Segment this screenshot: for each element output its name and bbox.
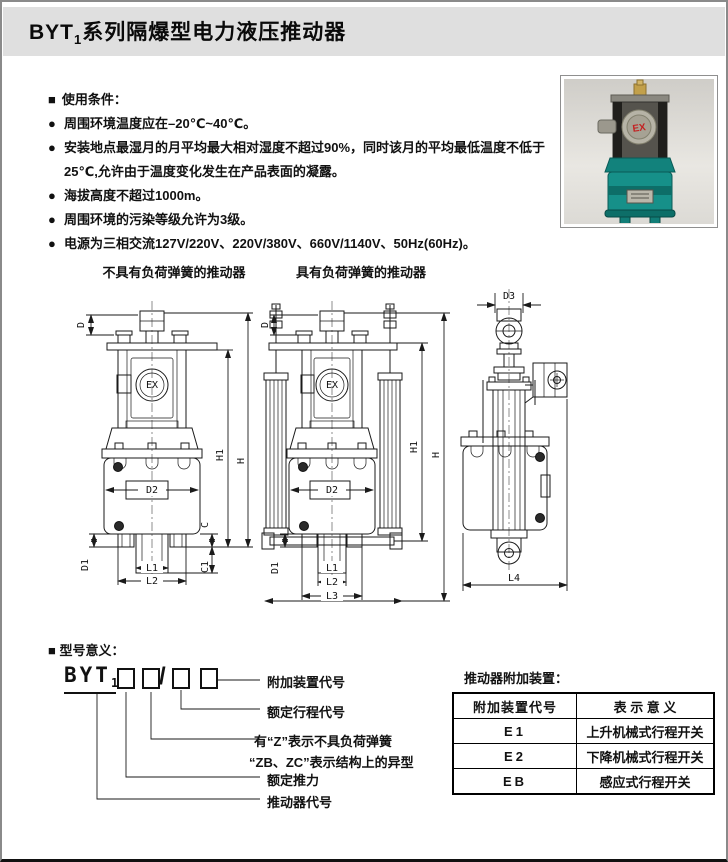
- dim-l2: L2: [146, 576, 158, 587]
- caption-no-spring: 不具有负荷弹簧的推动器: [94, 262, 254, 281]
- ex-label: EX: [326, 380, 338, 391]
- ex-marking: EX: [632, 122, 647, 135]
- list-item: ●电源为三相交流127V/220V、220V/380V、660V/1140V、5…: [48, 232, 548, 256]
- dim-h: H: [236, 458, 247, 464]
- dim-l1: L1: [146, 563, 158, 574]
- header-meaning: 表 示 意 义: [577, 693, 715, 719]
- cell-code: E2: [453, 744, 577, 769]
- conditions-list: ●周围环境温度应在–20℃~40℃。 ●安装地点最湿月的月平均最大相对湿度不超过…: [48, 112, 548, 256]
- accessories-table-caption: 推动器附加装置：: [464, 668, 568, 687]
- dim-c1: C1: [200, 561, 211, 573]
- cable-gland: [598, 120, 616, 133]
- dim-c: C: [200, 522, 211, 528]
- leader-stroke: [181, 690, 260, 709]
- drawing-with-spring: EX: [260, 285, 460, 610]
- header-accessory-code: 附加装置代号: [453, 693, 577, 719]
- leader-thrust: [126, 692, 260, 777]
- dot-bullet-icon: ●: [48, 184, 64, 208]
- model-heading-text: 型号意义：: [59, 643, 124, 658]
- brass-cap: [637, 80, 643, 85]
- drawing-side-view: D3 L4: [447, 285, 627, 615]
- label-thruster-code: 推动器代号: [267, 792, 332, 811]
- name-plate: [627, 190, 653, 203]
- dot-bullet-icon: ●: [48, 208, 64, 232]
- cell-code: E1: [453, 719, 577, 744]
- list-item: ●周围环境的污染等级允许为3级。: [48, 208, 548, 232]
- dim-h1: H1: [215, 449, 226, 461]
- motor-strip-right: [658, 102, 667, 158]
- list-item: ●海拔高度不超过1000m。: [48, 184, 548, 208]
- square-bullet-icon: ■: [48, 643, 56, 658]
- product-photo: EX: [564, 79, 714, 224]
- leg: [620, 217, 630, 223]
- dim-d: D: [260, 322, 271, 328]
- usage-conditions: ■ 使用条件： ●周围环境温度应在–20℃~40℃。 ●安装地点最湿月的月平均最…: [48, 88, 548, 256]
- motor-top-plate: [611, 95, 669, 102]
- dim-d2: D2: [326, 485, 338, 496]
- brass-fitting: [634, 84, 646, 95]
- dim-d1: D1: [80, 559, 91, 571]
- dim-d2: D2: [146, 485, 158, 496]
- page-title: BYT1系列隔爆型电力液压推动器: [29, 16, 346, 47]
- tank-rim: [605, 210, 675, 217]
- leader-code: [97, 694, 260, 799]
- cell-meaning: 感应式行程开关: [577, 769, 715, 795]
- table-header-row: 附加装置代号 表 示 意 义: [453, 693, 714, 719]
- ex-label: EX: [146, 380, 158, 391]
- cell-meaning: 上升机械式行程开关: [577, 719, 715, 744]
- title-subscript: 1: [74, 32, 82, 47]
- label-rated-thrust: 额定推力: [267, 770, 319, 789]
- table-row: E1 上升机械式行程开关: [453, 719, 714, 744]
- body-outline: [461, 309, 567, 564]
- thruster-photo-art: EX: [564, 79, 714, 223]
- dim-d3: D3: [503, 291, 515, 302]
- list-item: ●安装地点最湿月的月平均最大相对湿度不超过90%，同时该月的平均最低温度不低于2…: [48, 136, 548, 184]
- model-heading: ■ 型号意义：: [48, 640, 125, 659]
- caption-with-spring: 具有负荷弹簧的推动器: [288, 262, 434, 281]
- conditions-heading-text: 使用条件：: [62, 88, 127, 112]
- body-outline: EX: [102, 311, 217, 573]
- product-photo-frame: EX: [560, 75, 718, 228]
- accessories-table: 附加装置代号 表 示 意 义 E1 上升机械式行程开关 E2 下降机械式行程开关…: [452, 692, 715, 795]
- model-leader-lines: [48, 660, 278, 810]
- table-row: EB 感应式行程开关: [453, 769, 714, 795]
- dim-l2: L2: [326, 577, 338, 588]
- cell-code: EB: [453, 769, 577, 795]
- table-row: E2 下降机械式行程开关: [453, 744, 714, 769]
- dim-d: D: [76, 322, 87, 328]
- leader-z: [151, 692, 260, 739]
- dim-l4: L4: [508, 573, 520, 584]
- conditions-heading: ■ 使用条件：: [48, 88, 548, 112]
- dim-d1: D1: [270, 562, 281, 574]
- cell-meaning: 下降机械式行程开关: [577, 744, 715, 769]
- label-accessory-code: 附加装置代号: [267, 672, 345, 691]
- label-stroke-code: 额定行程代号: [267, 702, 345, 721]
- catalog-page: BYT1系列隔爆型电力液压推动器 ■ 使用条件： ●周围环境温度应在–20℃~4…: [0, 0, 728, 862]
- dim-l1: L1: [326, 563, 338, 574]
- title-bar: BYT1系列隔爆型电力液压推动器: [3, 7, 725, 56]
- list-item: ●周围环境温度应在–20℃~40℃。: [48, 112, 548, 136]
- label-zbzc-note: “ZB、ZC”表示结构上的异型: [249, 752, 414, 771]
- dim-l3: L3: [326, 591, 338, 602]
- square-bullet-icon: ■: [48, 88, 56, 112]
- dot-bullet-icon: ●: [48, 136, 64, 184]
- dimensions: D H1 H D2 C C1 D1 L1 L2: [76, 313, 253, 587]
- tank-collar: [605, 158, 675, 172]
- dot-bullet-icon: ●: [48, 112, 64, 136]
- label-z-note: 有“Z”表示不具负荷弹簧: [254, 731, 392, 750]
- dot-bullet-icon: ●: [48, 232, 64, 256]
- drawing-no-spring: EX D H1 H: [62, 285, 262, 605]
- dim-h1: H1: [409, 441, 420, 453]
- leg: [650, 217, 660, 223]
- dim-h: H: [431, 452, 442, 458]
